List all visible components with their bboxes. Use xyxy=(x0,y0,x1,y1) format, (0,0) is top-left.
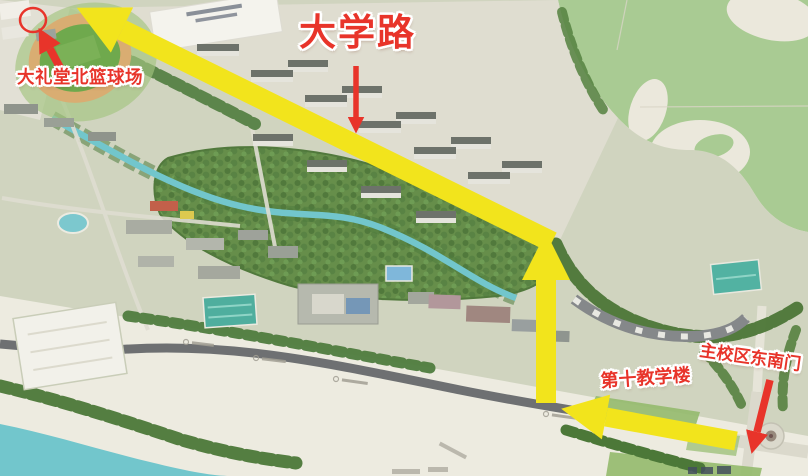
sports-court-left xyxy=(203,294,257,328)
glass-building xyxy=(386,266,412,281)
white-plaza xyxy=(13,302,127,389)
sports-court-right xyxy=(711,260,762,295)
destination-label: 大礼堂北篮球场 xyxy=(17,68,143,86)
pond xyxy=(58,213,88,233)
campus-map[interactable]: 大学路 大礼堂北篮球场 主校区东南门 第十教学楼 xyxy=(0,0,808,476)
red-roof-building xyxy=(150,201,178,211)
road-label: 大学路 xyxy=(299,14,416,53)
